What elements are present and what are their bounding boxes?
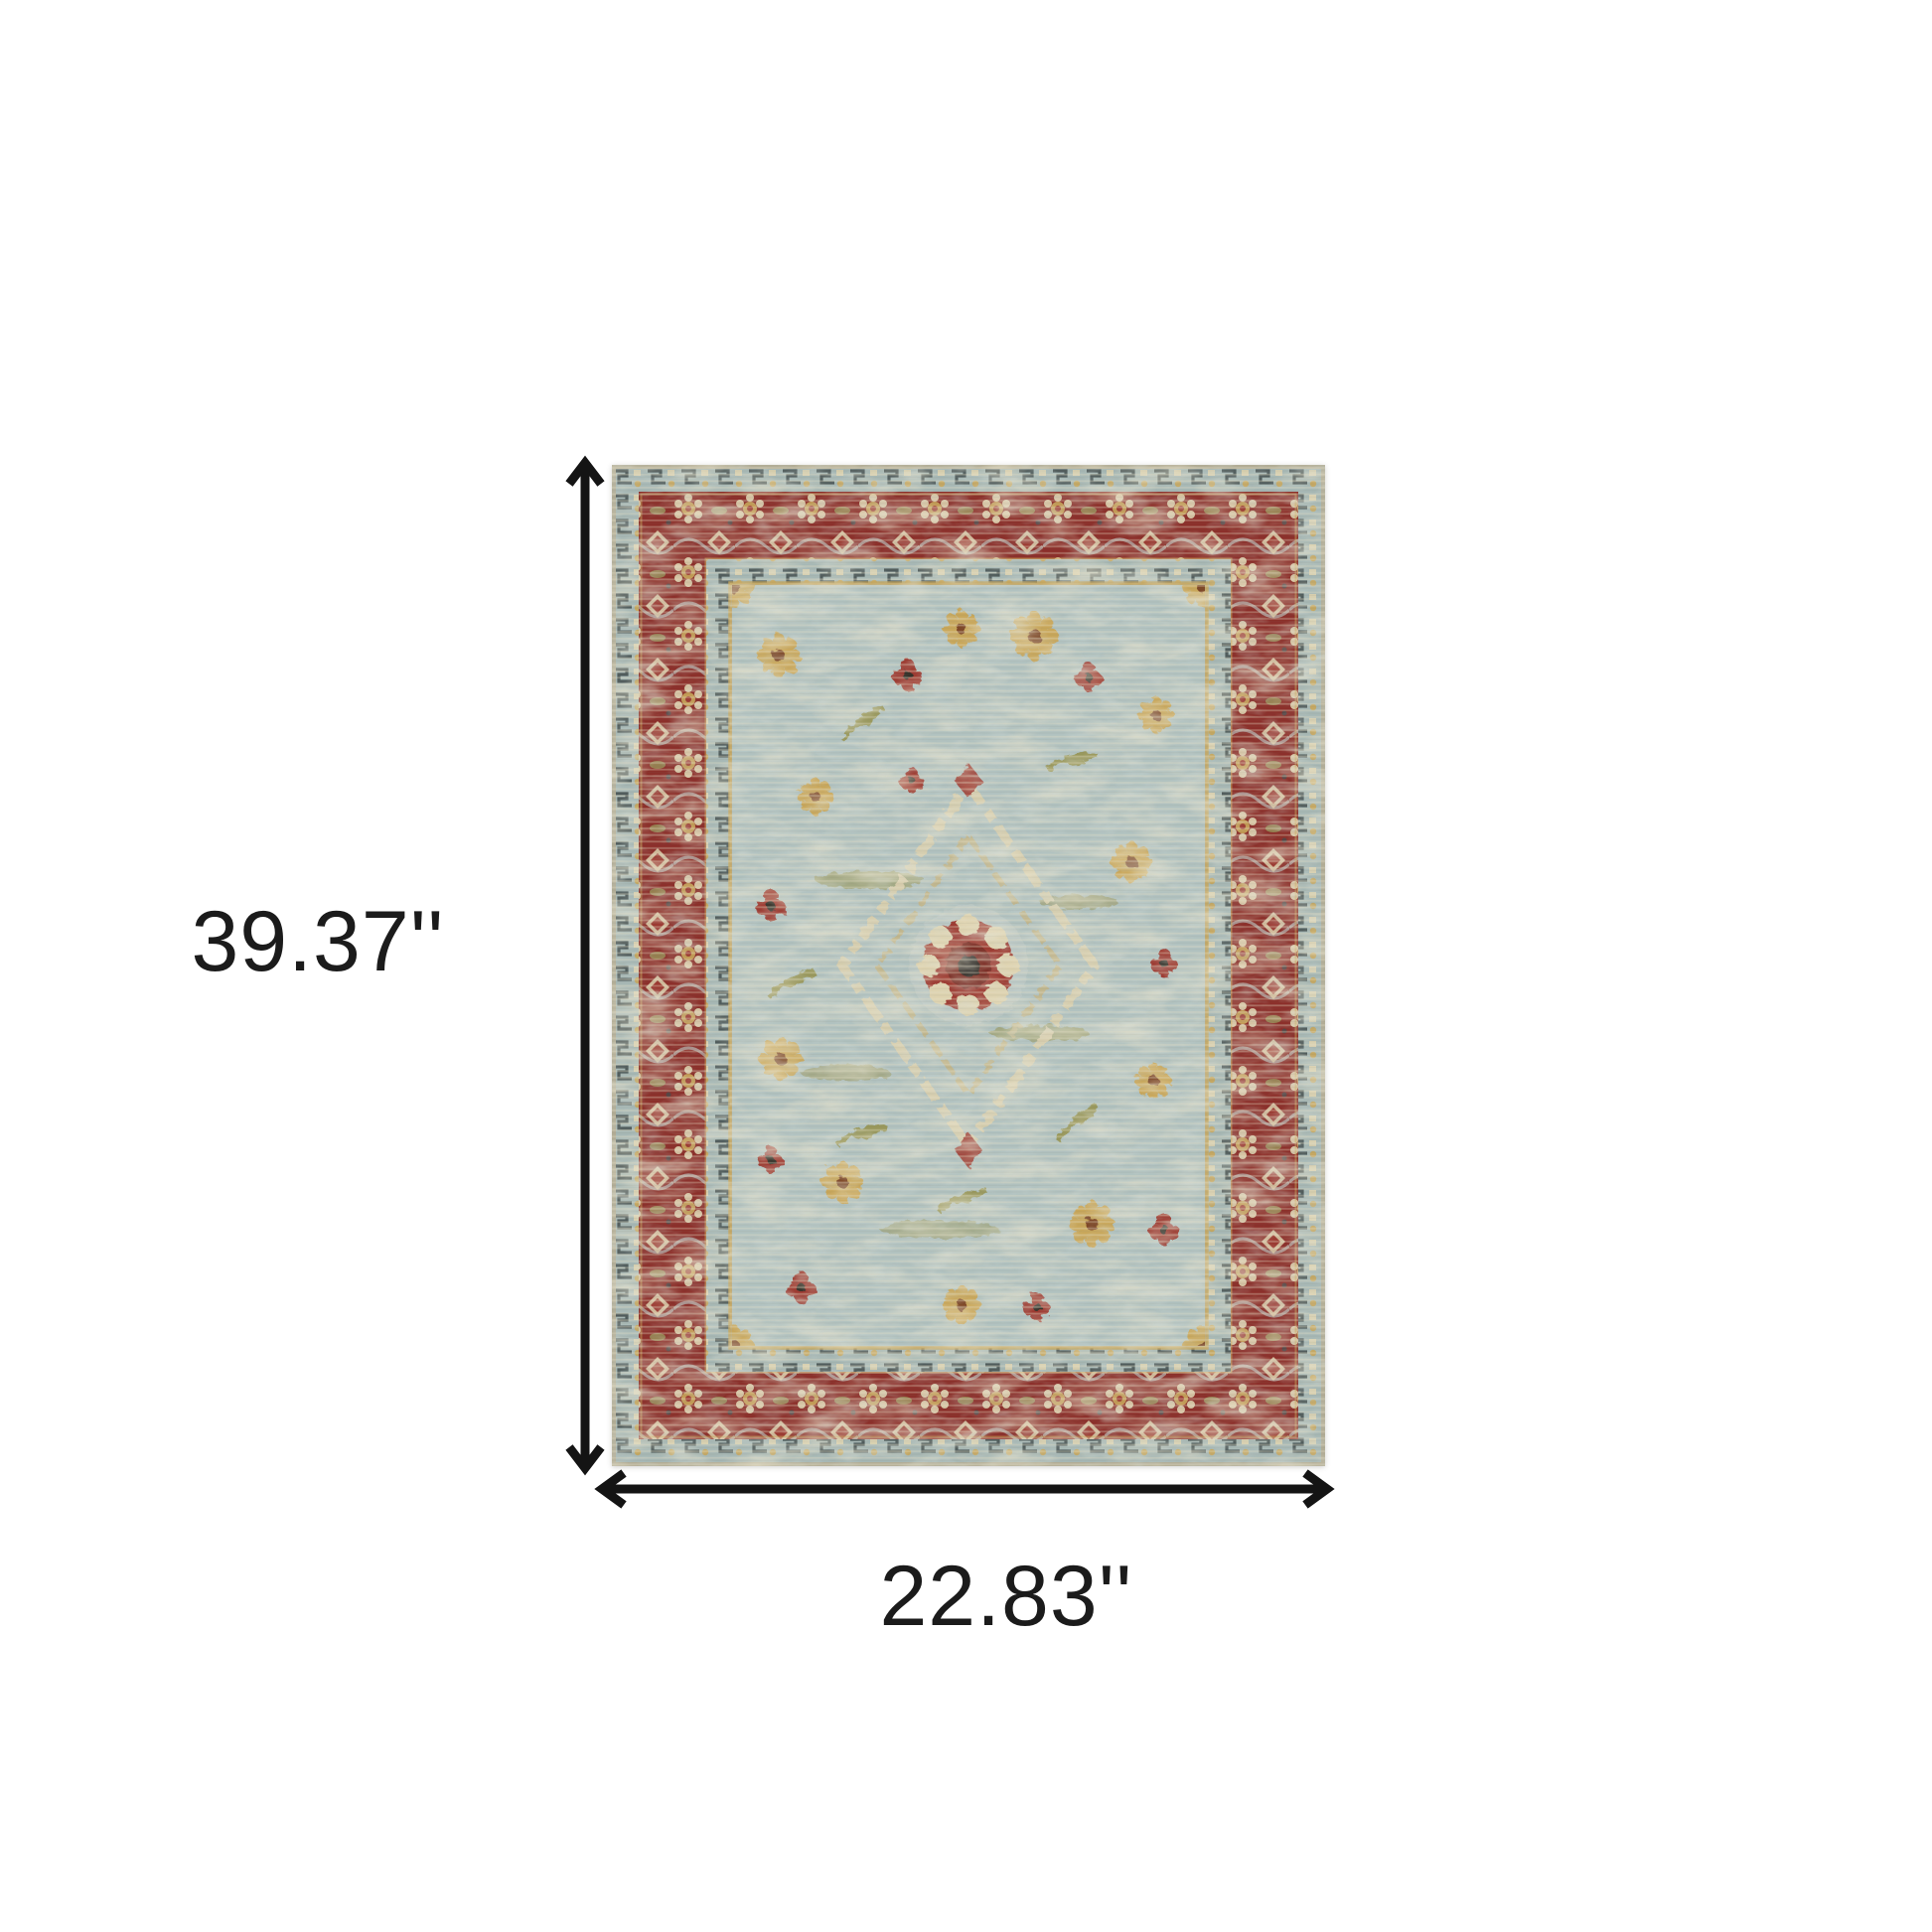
rug-graphic bbox=[612, 465, 1325, 1466]
width-dimension-label: 22.83'' bbox=[827, 1551, 1185, 1642]
height-dimension-label: 39.37'' bbox=[139, 896, 497, 987]
width-dimension-arrow bbox=[602, 1473, 1327, 1505]
product-dimension-diagram: 39.37'' 22.83'' bbox=[0, 0, 1932, 1932]
height-dimension-arrow bbox=[569, 463, 601, 1468]
rug-image bbox=[612, 465, 1325, 1466]
